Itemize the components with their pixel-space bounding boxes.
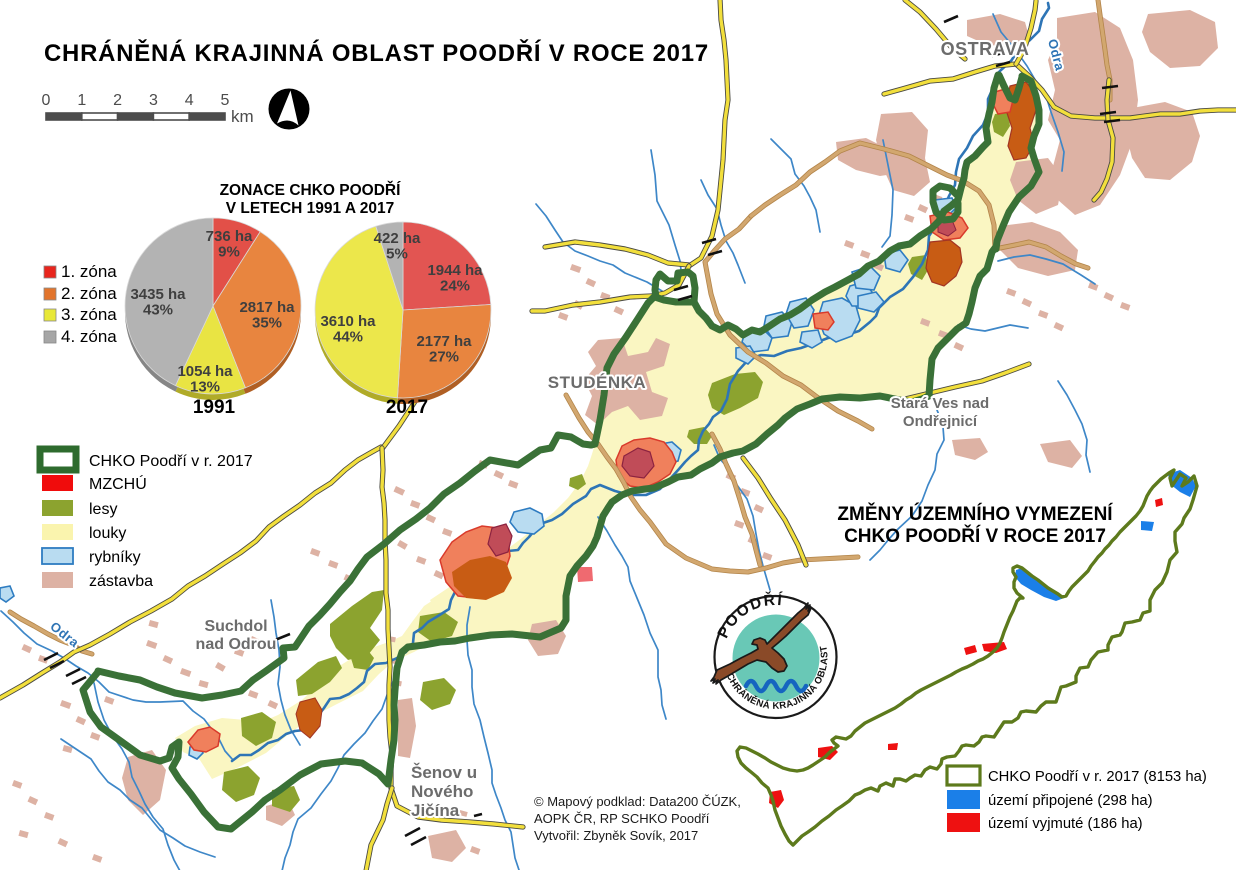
svg-text:43%: 43% [143, 302, 173, 319]
svg-text:Suchdol: Suchdol [204, 618, 267, 635]
svg-text:24%: 24% [440, 278, 470, 295]
svg-text:MZCHÚ: MZCHÚ [89, 474, 147, 493]
svg-text:13%: 13% [190, 379, 220, 396]
svg-text:2. zóna: 2. zóna [61, 284, 117, 303]
svg-text:nad Odrou: nad Odrou [196, 636, 277, 653]
svg-text:Stará Ves nad: Stará Ves nad [891, 395, 989, 412]
svg-text:3435 ha: 3435 ha [130, 286, 186, 303]
svg-text:3610 ha: 3610 ha [320, 313, 376, 330]
svg-text:44%: 44% [333, 329, 363, 346]
svg-text:V LETECH 1991 A 2017: V LETECH 1991 A 2017 [226, 200, 395, 217]
svg-text:Šenov u: Šenov u [411, 763, 477, 782]
svg-text:27%: 27% [429, 349, 459, 366]
svg-text:1. zóna: 1. zóna [61, 262, 117, 281]
svg-text:CHKO Poodří v r. 2017 (8153 ha: CHKO Poodří v r. 2017 (8153 ha) [988, 769, 1207, 785]
svg-text:území vyjmuté (186 ha): území vyjmuté (186 ha) [988, 816, 1143, 832]
svg-text:louky: louky [89, 525, 126, 542]
svg-text:2817 ha: 2817 ha [239, 299, 295, 316]
svg-text:2177 ha: 2177 ha [416, 333, 472, 350]
svg-text:CHKO POODŘÍ V ROCE 2017: CHKO POODŘÍ V ROCE 2017 [844, 525, 1106, 547]
svg-text:zástavba: zástavba [89, 573, 153, 590]
svg-text:1991: 1991 [193, 397, 236, 418]
svg-text:Ondřejnicí: Ondřejnicí [903, 413, 978, 430]
svg-text:AOPK ČR, RP SCHKO Poodří: AOPK ČR, RP SCHKO Poodří [534, 811, 710, 826]
svg-text:2017: 2017 [386, 397, 428, 418]
svg-text:422 ha: 422 ha [374, 230, 421, 247]
svg-text:4. zóna: 4. zóna [61, 327, 117, 346]
svg-text:1054 ha: 1054 ha [177, 363, 233, 380]
svg-text:km: km [231, 107, 254, 126]
svg-text:5: 5 [221, 92, 230, 109]
svg-text:9%: 9% [218, 244, 240, 261]
svg-text:2: 2 [113, 92, 122, 109]
svg-text:1944 ha: 1944 ha [427, 262, 483, 279]
svg-text:1: 1 [77, 92, 86, 109]
svg-text:3: 3 [149, 92, 158, 109]
svg-text:5%: 5% [386, 246, 408, 263]
svg-text:STUDÉNKA: STUDÉNKA [548, 373, 646, 392]
svg-text:35%: 35% [252, 315, 282, 332]
svg-text:lesy: lesy [89, 501, 117, 518]
svg-text:území připojené (298 ha): území připojené (298 ha) [988, 793, 1153, 809]
svg-text:Jičína: Jičína [411, 801, 460, 820]
svg-text:OSTRAVA: OSTRAVA [941, 39, 1030, 59]
svg-text:4: 4 [185, 92, 194, 109]
svg-text:736 ha: 736 ha [206, 228, 253, 245]
svg-text:3. zóna: 3. zóna [61, 305, 117, 324]
svg-text:rybníky: rybníky [89, 549, 141, 566]
svg-text:ZONACE CHKO POODŘÍ: ZONACE CHKO POODŘÍ [220, 181, 402, 199]
svg-text:CHRÁNĚNÁ KRAJINNÁ OBLAST POODŘ: CHRÁNĚNÁ KRAJINNÁ OBLAST POODŘÍ V ROCE 2… [44, 39, 709, 67]
svg-text:Nového: Nového [411, 782, 473, 801]
svg-text:0: 0 [42, 92, 51, 109]
svg-text:Vytvořil: Zbyněk Sovík, 2017: Vytvořil: Zbyněk Sovík, 2017 [534, 828, 698, 843]
svg-text:ZMĚNY ÚZEMNÍHO VYMEZENÍ: ZMĚNY ÚZEMNÍHO VYMEZENÍ [837, 503, 1113, 525]
svg-text:© Mapový podklad: Data200 ČÚZK: © Mapový podklad: Data200 ČÚZK, [534, 794, 741, 809]
svg-text:CHKO Poodří v r. 2017: CHKO Poodří v r. 2017 [89, 453, 253, 470]
